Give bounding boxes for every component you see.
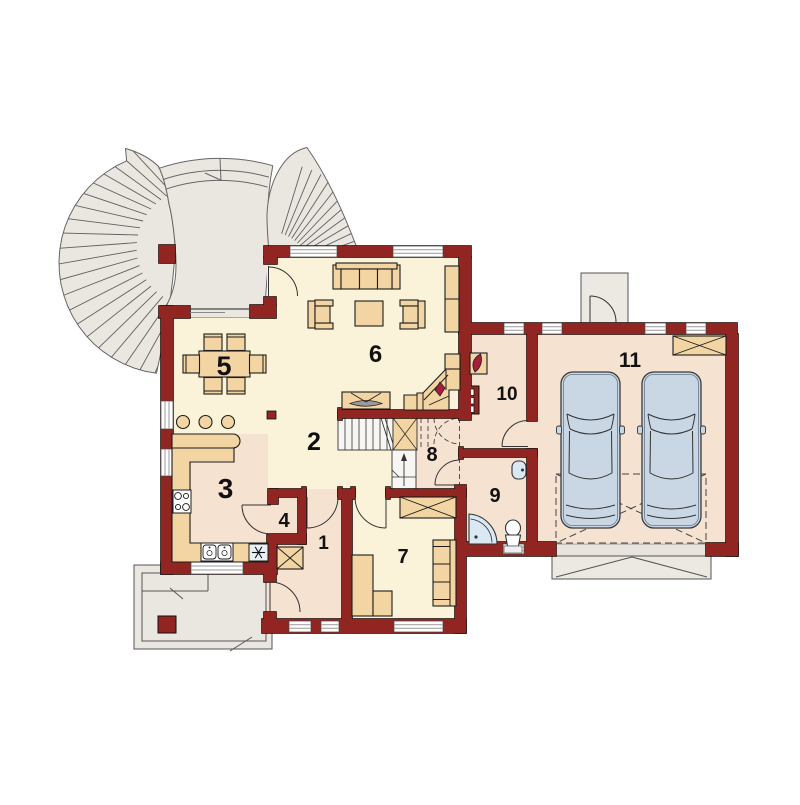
svg-text:5: 5 xyxy=(216,351,231,381)
svg-text:1: 1 xyxy=(318,533,329,554)
svg-text:3: 3 xyxy=(218,473,234,504)
svg-text:10: 10 xyxy=(496,384,517,405)
svg-text:4: 4 xyxy=(278,510,290,532)
svg-text:7: 7 xyxy=(397,546,408,568)
svg-text:9: 9 xyxy=(489,485,500,507)
svg-text:8: 8 xyxy=(426,444,437,466)
svg-text:6: 6 xyxy=(369,341,382,368)
svg-text:11: 11 xyxy=(619,349,642,372)
svg-text:2: 2 xyxy=(307,428,321,456)
